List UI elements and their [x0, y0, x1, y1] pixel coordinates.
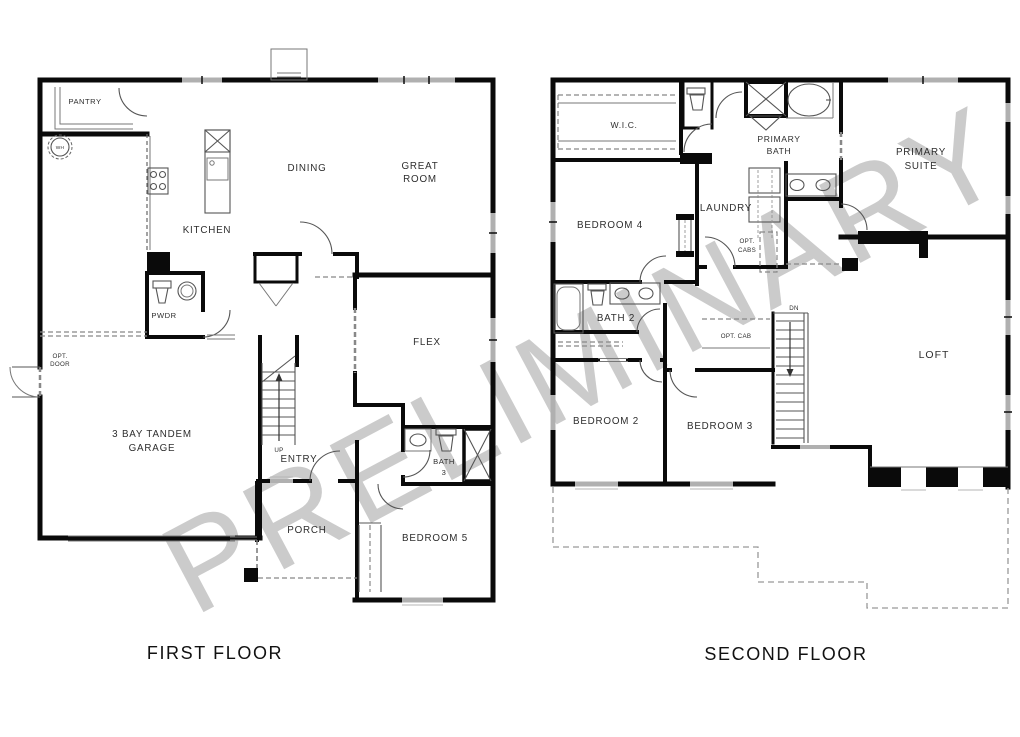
label-great-room-1: GREAT	[401, 161, 438, 172]
label-dn: DN	[789, 305, 799, 312]
label-bath3-2: 3	[442, 468, 447, 477]
label-porch: PORCH	[287, 525, 326, 536]
label-bedroom3: BEDROOM 3	[687, 421, 753, 432]
floor-titles: FIRST FLOOR SECOND FLOOR	[147, 643, 868, 664]
flex-opening	[315, 277, 355, 373]
label-primary-bath-1: PRIMARY	[757, 134, 800, 144]
label-bedroom4: BEDROOM 4	[577, 220, 643, 231]
first-floor-stairs	[262, 356, 295, 445]
floor-plan-canvas: PANTRY WH KITCHEN DINING GREAT ROOM PWDR…	[0, 0, 1020, 737]
label-entry: ENTRY	[280, 454, 317, 465]
roof-outline	[553, 487, 1008, 608]
first-floor-windows	[182, 76, 497, 605]
bedroom4-closet-door	[640, 214, 694, 282]
first-floor-plan: PANTRY WH KITCHEN DINING GREAT ROOM PWDR…	[10, 49, 497, 605]
label-up: UP	[274, 447, 283, 454]
label-flex: FLEX	[413, 337, 441, 348]
second-floor-stairs	[773, 313, 808, 443]
primary-suite-door	[786, 204, 867, 264]
label-primary-suite-1: PRIMARY	[896, 147, 946, 158]
label-bedroom5: BEDROOM 5	[402, 533, 468, 544]
label-opt-door-2: DOOR	[50, 361, 70, 368]
label-opt-cab: OPT. CAB	[721, 333, 752, 340]
second-floor-plan: W.I.C. PRIMARY BATH PRIMARY SUITE BEDROO…	[549, 76, 1012, 608]
pantry-shelving	[55, 87, 147, 129]
chimney	[271, 49, 307, 80]
label-opt-door-1: OPT.	[53, 353, 68, 360]
second-floor-title: SECOND FLOOR	[704, 644, 867, 664]
optional-garage-side-door	[10, 367, 40, 397]
label-wic: W.I.C.	[611, 120, 638, 130]
label-bedroom2: BEDROOM 2	[573, 416, 639, 427]
label-opt-cabs-2: CABS	[738, 247, 756, 254]
label-dining: DINING	[287, 163, 326, 174]
second-floor-labels: W.I.C. PRIMARY BATH PRIMARY SUITE BEDROO…	[573, 120, 949, 432]
bedroom3-door-optcab	[670, 319, 770, 397]
powder-room-fixtures	[153, 281, 230, 337]
floor-plan-page: PRELIMINARY	[0, 0, 1020, 737]
bath2-fixtures	[554, 283, 660, 333]
label-bath3-1: BATH	[433, 457, 455, 466]
label-garage-2: GARAGE	[129, 443, 176, 454]
first-floor-title: FIRST FLOOR	[147, 643, 283, 663]
label-garage-1: 3 BAY TANDEM	[112, 429, 192, 440]
label-primary-suite-2: SUITE	[905, 161, 938, 172]
label-laundry: LAUNDRY	[700, 203, 752, 214]
laundry-fixtures	[705, 168, 780, 272]
label-loft: LOFT	[919, 349, 950, 361]
label-opt-cabs-1: OPT.	[740, 238, 755, 245]
label-great-room-2: ROOM	[403, 174, 437, 185]
bath3-fixtures	[403, 429, 491, 481]
label-bath2: BATH 2	[597, 313, 635, 324]
label-kitchen: KITCHEN	[183, 225, 232, 236]
label-primary-bath-2: BATH	[767, 146, 792, 156]
label-pwdr: PWDR	[151, 311, 176, 320]
label-pantry: PANTRY	[68, 97, 101, 106]
label-wh: WH	[56, 145, 65, 151]
